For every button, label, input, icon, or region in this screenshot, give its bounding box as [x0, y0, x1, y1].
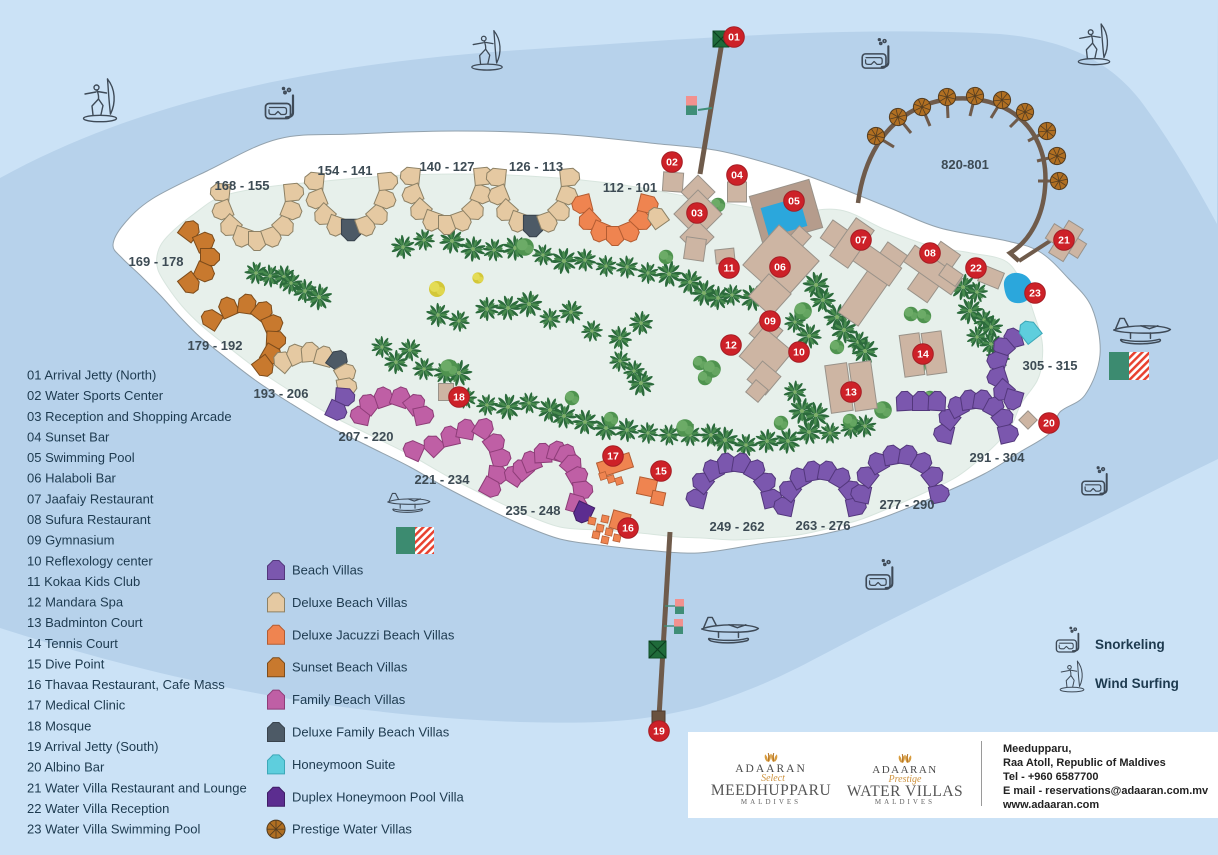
- svg-text:17 Medical Clinic: 17 Medical Clinic: [27, 698, 126, 713]
- svg-text:126 - 113: 126 - 113: [509, 159, 563, 174]
- svg-text:820-801: 820-801: [941, 157, 989, 172]
- svg-text:14: 14: [917, 349, 929, 361]
- svg-text:06 Halaboli Bar: 06 Halaboli Bar: [27, 471, 117, 486]
- svg-text:11: 11: [723, 263, 734, 275]
- svg-text:277 - 290: 277 - 290: [880, 497, 935, 512]
- svg-text:09 Gymnasium: 09 Gymnasium: [27, 533, 114, 548]
- svg-text:193 - 206: 193 - 206: [254, 386, 309, 401]
- svg-text:04 Sunset Bar: 04 Sunset Bar: [27, 429, 110, 444]
- svg-text:13 Badminton Court: 13 Badminton Court: [27, 615, 143, 630]
- svg-text:05 Swimming Pool: 05 Swimming Pool: [27, 450, 135, 465]
- svg-text:154 - 141: 154 - 141: [318, 163, 373, 178]
- svg-text:Deluxe Beach Villas: Deluxe Beach Villas: [292, 595, 408, 610]
- svg-text:14 Tennis Court: 14 Tennis Court: [27, 636, 118, 651]
- svg-text:03: 03: [691, 208, 703, 220]
- svg-text:Wind Surfing: Wind Surfing: [1095, 676, 1179, 691]
- svg-text:Family Beach Villas: Family Beach Villas: [292, 692, 406, 707]
- svg-text:MEEDHUPPARU: MEEDHUPPARU: [711, 782, 831, 799]
- svg-text:03 Reception and Shopping Arca: 03 Reception and Shopping Arcade: [27, 409, 232, 424]
- svg-text:305 - 315: 305 - 315: [1023, 358, 1078, 373]
- svg-text:112 - 101: 112 - 101: [603, 180, 657, 195]
- svg-text:22: 22: [970, 263, 982, 275]
- svg-text:E mail - reservations@adaaran.: E mail - reservations@adaaran.com.mv: [1003, 785, 1209, 797]
- svg-text:15: 15: [655, 466, 667, 478]
- svg-text:02 Water Sports Center: 02 Water Sports Center: [27, 388, 164, 403]
- svg-text:16: 16: [622, 523, 634, 535]
- svg-text:18: 18: [453, 392, 465, 404]
- svg-text:221 - 234: 221 - 234: [415, 472, 471, 487]
- svg-text:11 Kokaa Kids Club: 11 Kokaa Kids Club: [27, 574, 140, 589]
- svg-text:15 Dive Point: 15 Dive Point: [27, 657, 105, 672]
- svg-text:Meedupparu,: Meedupparu,: [1003, 743, 1071, 755]
- svg-text:21: 21: [1058, 235, 1070, 247]
- svg-text:07 Jaafaiy Restaurant: 07 Jaafaiy Restaurant: [27, 491, 154, 506]
- svg-text:07: 07: [855, 235, 867, 247]
- svg-text:www.adaaran.com: www.adaaran.com: [1002, 799, 1099, 811]
- svg-text:18 Mosque: 18 Mosque: [27, 718, 91, 733]
- svg-text:10: 10: [793, 347, 805, 359]
- svg-text:13: 13: [845, 387, 857, 399]
- svg-text:12: 12: [725, 340, 737, 352]
- svg-text:10 Reflexology center: 10 Reflexology center: [27, 553, 153, 568]
- svg-text:Deluxe Family Beach Villas: Deluxe Family Beach Villas: [292, 725, 450, 740]
- svg-text:05: 05: [788, 196, 800, 208]
- svg-text:Sunset Beach Villas: Sunset Beach Villas: [292, 660, 408, 675]
- svg-text:04: 04: [731, 170, 743, 182]
- svg-text:22 Water Villa Reception: 22 Water Villa Reception: [27, 801, 169, 816]
- svg-text:12 Mandara Spa: 12 Mandara Spa: [27, 595, 124, 610]
- svg-text:20 Albino Bar: 20 Albino Bar: [27, 760, 105, 775]
- svg-text:179 - 192: 179 - 192: [188, 338, 243, 353]
- svg-text:Tel - +960 6587700: Tel - +960 6587700: [1003, 771, 1099, 783]
- svg-text:Snorkeling: Snorkeling: [1095, 637, 1165, 652]
- svg-text:Duplex Honeymoon Pool Villa: Duplex Honeymoon Pool Villa: [292, 789, 465, 804]
- svg-text:16 Thavaa Restaurant, Cafe Mas: 16 Thavaa Restaurant, Cafe Mass: [27, 677, 225, 692]
- svg-text:23: 23: [1029, 288, 1041, 300]
- svg-text:09: 09: [764, 316, 776, 328]
- svg-text:02: 02: [666, 157, 678, 169]
- svg-text:20: 20: [1043, 418, 1055, 430]
- svg-text:08 Sufura Restaurant: 08 Sufura Restaurant: [27, 512, 151, 527]
- svg-text:168 - 155: 168 - 155: [215, 178, 270, 193]
- svg-text:Honeymoon Suite: Honeymoon Suite: [292, 757, 395, 772]
- svg-text:06: 06: [774, 262, 786, 274]
- svg-text:169 - 178: 169 - 178: [129, 254, 184, 269]
- svg-text:291 - 304: 291 - 304: [970, 450, 1026, 465]
- svg-text:08: 08: [924, 248, 936, 260]
- svg-text:Beach Villas: Beach Villas: [292, 563, 364, 578]
- svg-text:Raa Atoll, Republic of Maldive: Raa Atoll, Republic of Maldives: [1003, 757, 1166, 769]
- svg-text:19: 19: [653, 726, 665, 738]
- svg-text:235 - 248: 235 - 248: [506, 503, 561, 518]
- svg-text:21 Water Villa Restaurant and: 21 Water Villa Restaurant and Lounge: [27, 780, 247, 795]
- svg-text:207 - 220: 207 - 220: [339, 429, 394, 444]
- svg-text:23 Water Villa Swimming Pool: 23 Water Villa Swimming Pool: [27, 822, 201, 837]
- svg-text:263 - 276: 263 - 276: [796, 518, 851, 533]
- svg-text:01 Arrival Jetty (North): 01 Arrival Jetty (North): [27, 368, 156, 383]
- svg-text:Prestige Water Villas: Prestige Water Villas: [292, 822, 412, 837]
- svg-text:01: 01: [728, 32, 740, 44]
- svg-text:MALDIVES: MALDIVES: [875, 798, 935, 806]
- svg-text:MALDIVES: MALDIVES: [741, 798, 801, 806]
- svg-text:17: 17: [607, 451, 619, 463]
- svg-text:249 - 262: 249 - 262: [710, 519, 765, 534]
- svg-text:Deluxe Jacuzzi Beach Villas: Deluxe Jacuzzi Beach Villas: [292, 627, 455, 642]
- svg-text:19 Arrival Jetty (South): 19 Arrival Jetty (South): [27, 739, 159, 754]
- svg-text:140 - 127: 140 - 127: [420, 159, 475, 174]
